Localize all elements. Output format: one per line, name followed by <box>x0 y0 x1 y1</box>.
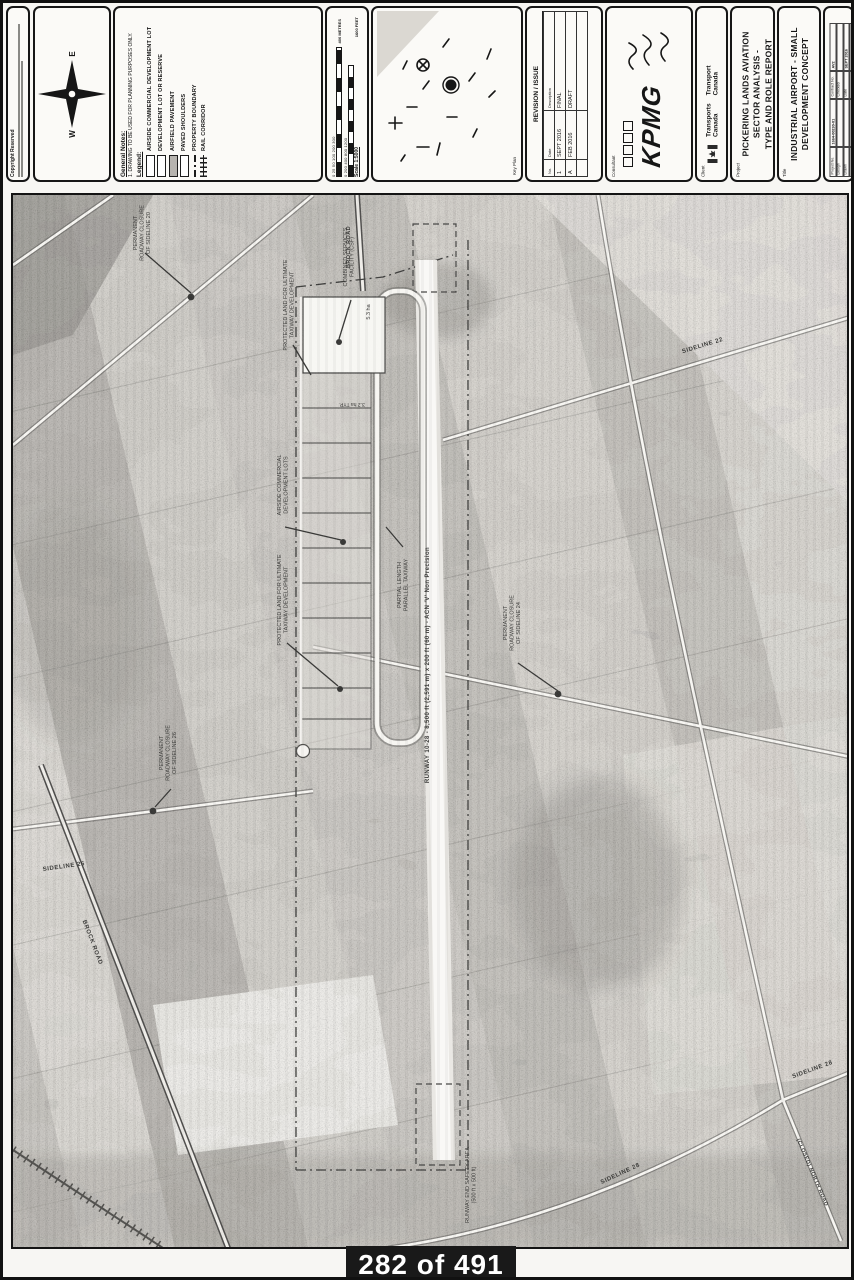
rev-date: SEPT 2016 <box>555 111 566 160</box>
signature-marks <box>621 15 681 75</box>
rev-no: A <box>566 160 577 177</box>
client-panel: Client Transports Canada Transport Canad… <box>695 6 728 182</box>
info-label: SHEET No. <box>849 71 854 99</box>
general-note: 1. DRAWING TO BE USED FOR PLANNING PURPO… <box>128 11 134 177</box>
scale-panel: 0 25 50 100 200 300 400 METRES 0 200 400… <box>325 6 369 182</box>
legend-panel: General Notes: 1. DRAWING TO BE USED FOR… <box>113 6 323 182</box>
legend-swatch-rail-corridor <box>200 155 207 177</box>
legend-heading: Legend: <box>136 11 143 177</box>
page-indicator[interactable]: 282 of 491 <box>346 1246 516 1280</box>
fine-print-line <box>18 24 20 177</box>
scale-metres-unit: 400 METRES <box>337 19 342 177</box>
key-plan-panel: Key Plan <box>371 6 523 182</box>
north-arrow-icon: N E S W <box>35 8 109 180</box>
revision-col: Date <box>544 111 555 160</box>
info-value: 1664-00230-01 <box>829 99 836 147</box>
revision-table: No. Date Description 1 SEPT 2016 FINAL A… <box>543 11 588 177</box>
info-label: Drawn <box>843 147 850 177</box>
compass-w: W <box>68 130 77 138</box>
revision-col: Description <box>544 12 555 111</box>
legend-label: DEVELOPMENT LOT OR RESERVE <box>158 54 164 151</box>
aerial-map-area: RUNWAY 10-28 - 8,500 ft (2,591 m) x 200 … <box>11 193 849 1249</box>
info-value <box>836 23 843 71</box>
drawing-info-grid: Project No. 1664-00230-01 Contract No. A… <box>829 11 854 177</box>
info-label: Project No. <box>829 147 836 177</box>
info-value <box>843 99 850 147</box>
client-label: Client <box>700 165 705 177</box>
legend-swatch-airfield-pavement <box>169 155 178 177</box>
revision-title: REVISION / ISSUE <box>531 11 543 177</box>
legend-swatch-paved-shoulders <box>180 155 189 177</box>
rev-desc: DRAFT <box>566 12 577 111</box>
kpmg-logo-square <box>623 133 633 143</box>
key-plan-label: Key Plan <box>512 157 517 175</box>
map-canvas: RUNWAY 10-28 - 8,500 ft (2,591 m) x 200 … <box>13 195 849 1248</box>
key-plan-map <box>377 11 503 177</box>
client-org-fr: Transports Canada <box>705 103 719 137</box>
rev-desc: FINAL <box>555 12 566 111</box>
fine-print-line <box>21 61 23 177</box>
consultant-label: Consultant <box>611 11 616 177</box>
client-org-en: Transport Canada <box>705 65 719 95</box>
kpmg-logo-square <box>623 121 633 131</box>
info-value: FIGURE 5.1 <box>849 99 854 147</box>
revision-col: No. <box>544 160 555 177</box>
info-label: Contract No. <box>829 71 836 99</box>
compass-n: N <box>35 91 36 97</box>
revision-row-empty <box>577 12 588 177</box>
legend-label: RAIL CORRIDOR <box>201 104 207 151</box>
copyright-text: Copyright Reserved <box>10 11 16 177</box>
revision-row: A FEB 2016 DRAFT <box>566 12 577 177</box>
legend-swatch-property-boundary <box>194 155 196 177</box>
general-notes-heading: General Notes: <box>120 11 127 177</box>
info-label: Date <box>843 71 850 99</box>
canada-flag-icon <box>707 145 717 163</box>
project-label: Project <box>735 163 740 177</box>
copyright-panel: Copyright Reserved <box>6 6 30 182</box>
title-label: Title <box>782 169 787 177</box>
drawing-info-panel: Project No. 1664-00230-01 Contract No. A… <box>823 6 854 182</box>
legend-label: PROPERTY BOUNDARY <box>192 84 198 151</box>
info-label: Design <box>836 147 843 177</box>
kpmg-logo-square <box>623 157 633 167</box>
rev-no: 1 <box>555 160 566 177</box>
kpmg-logo-square <box>623 145 633 155</box>
revision-panel: REVISION / ISSUE No. Date Description 1 … <box>525 6 603 182</box>
info-label: Checked <box>836 71 843 99</box>
scale-label: Scale 1:5000 <box>354 147 360 177</box>
drawing-title: INDUSTRIAL AIRPORT - SMALL DEVELOPMENT C… <box>789 11 812 177</box>
rev-date: FEB 2016 <box>566 111 577 160</box>
info-value: SEPT 2016 <box>843 23 850 71</box>
legend-label: PAVED SHOULDERS <box>181 94 187 151</box>
info-value: AV2 <box>829 23 836 71</box>
legend-label: AIRFIELD PAVEMENT <box>170 91 176 151</box>
legend-swatch-airside-lot <box>146 155 155 177</box>
drawing-title-panel: Title INDUSTRIAL AIRPORT - SMALL DEVELOP… <box>777 6 821 182</box>
consultant-panel: Consultant KPMG <box>605 6 693 182</box>
north-arrow-panel: N E S W <box>33 6 111 182</box>
scale-feet-unit: 1600 FEET <box>354 17 360 37</box>
info-label: DRAWING No. <box>849 147 854 177</box>
info-value <box>836 99 843 147</box>
compass-e: E <box>68 51 77 57</box>
project-name: PICKERING LANDS AVIATION SECTOR ANALYSIS… <box>740 11 774 177</box>
scanned-drawing-sheet: Copyright Reserved N E S W General Notes… <box>0 0 854 1280</box>
legend-swatch-dev-lot <box>157 155 166 177</box>
project-panel: Project PICKERING LANDS AVIATION SECTOR … <box>730 6 775 182</box>
legend-label: AIRSIDE COMMERCIAL DEVELOPMENT LOT <box>147 27 153 151</box>
revision-row: 1 SEPT 2016 FINAL <box>555 12 566 177</box>
info-value: 01 of 09 <box>849 23 854 71</box>
